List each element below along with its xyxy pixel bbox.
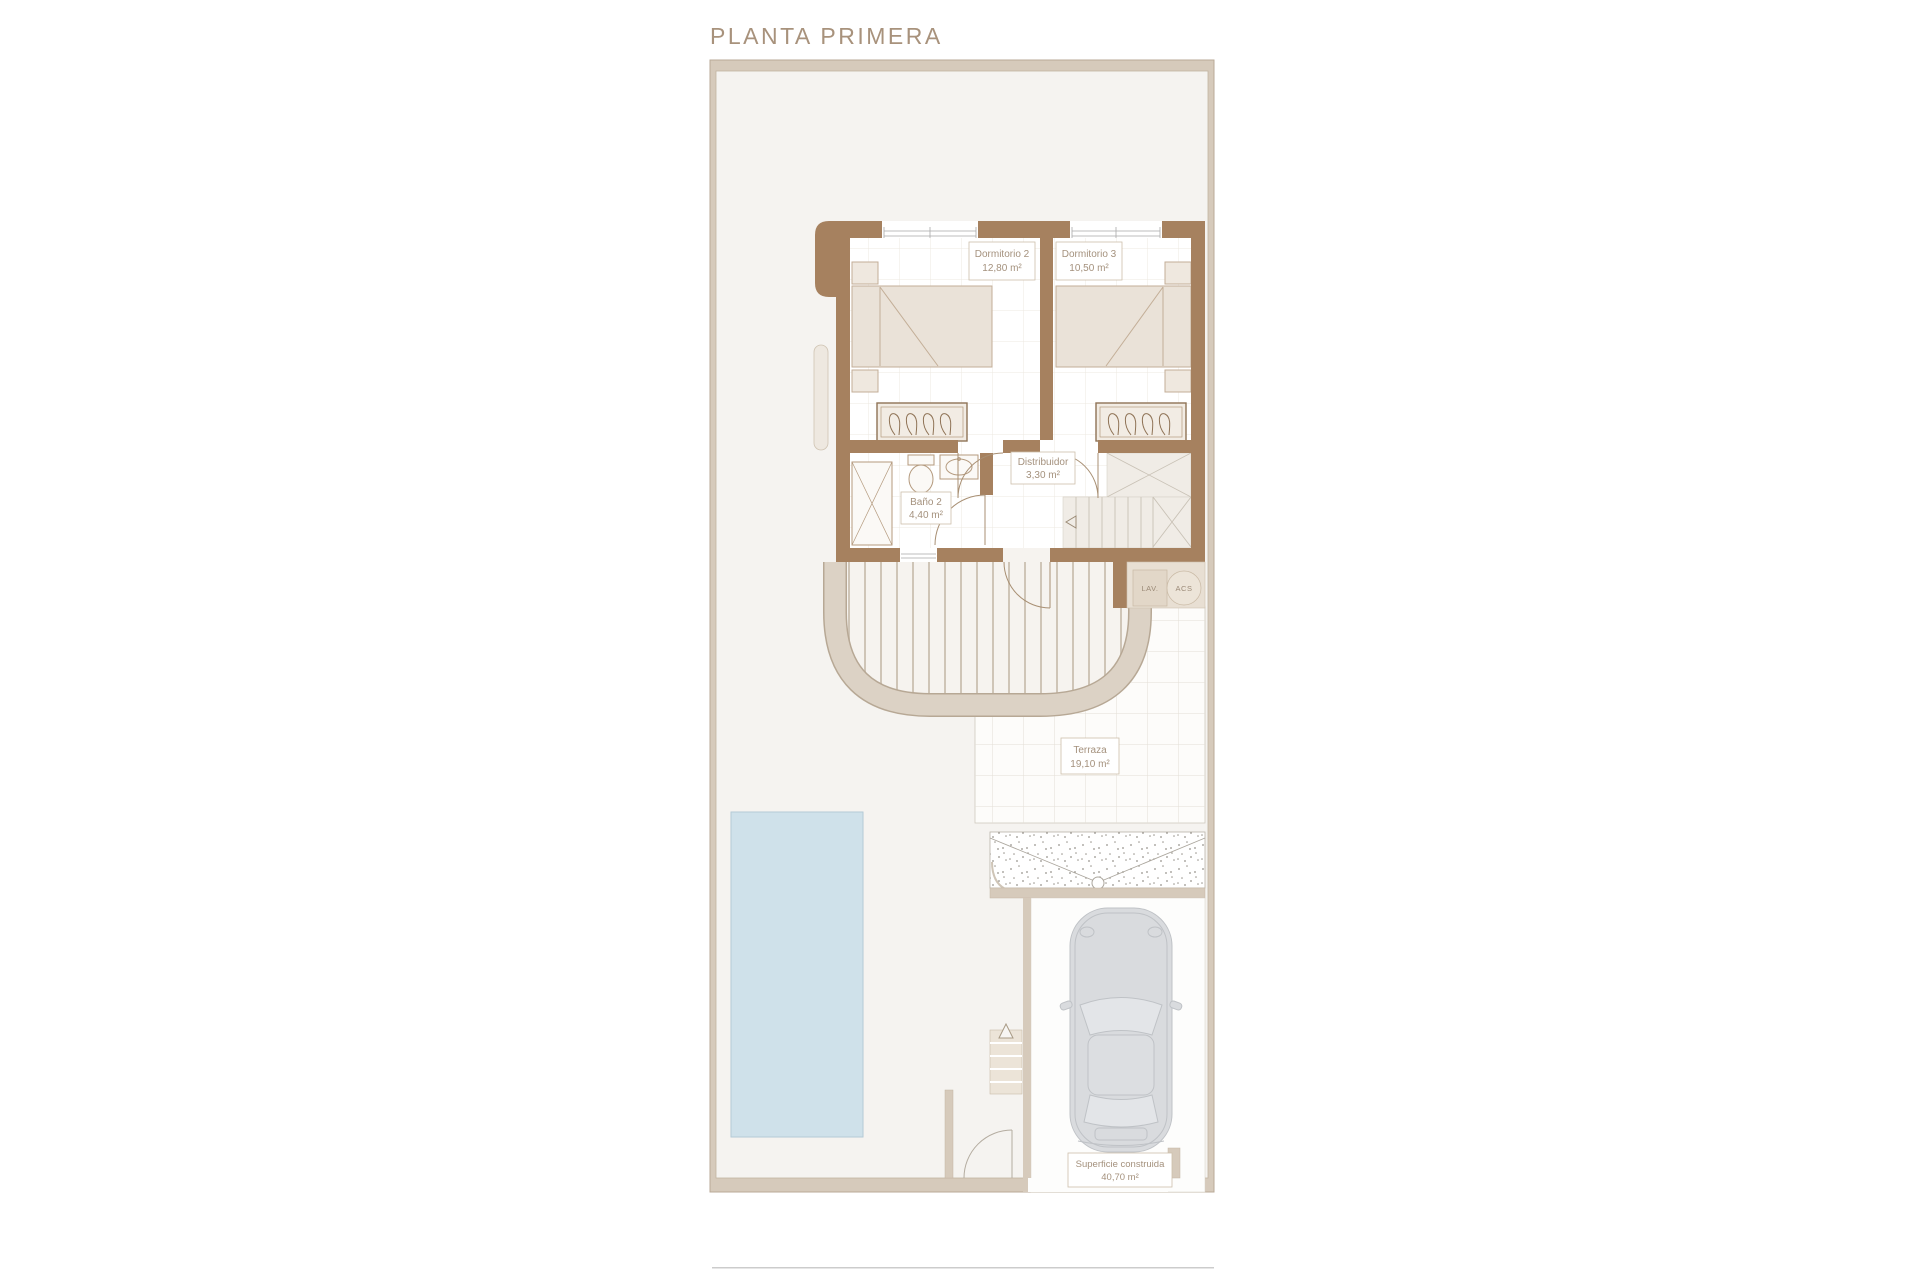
svg-text:Terraza: Terraza bbox=[1073, 745, 1107, 756]
wall-bathroom bbox=[980, 453, 993, 495]
wall-left bbox=[836, 238, 850, 548]
svg-text:12,80 m²: 12,80 m² bbox=[982, 263, 1022, 274]
porch-pergola bbox=[835, 562, 1140, 705]
bay-outline bbox=[814, 345, 828, 450]
svg-text:Distribuidor: Distribuidor bbox=[1018, 457, 1069, 468]
toilet-symbol bbox=[908, 455, 934, 493]
laundry-label: LAV. bbox=[1141, 584, 1158, 593]
sink-symbol bbox=[940, 455, 978, 479]
canopy-wall-strip bbox=[990, 888, 1205, 898]
floor-plan-page: PLANTA PRIMERA bbox=[0, 0, 1920, 1280]
nightstand-symbol bbox=[1165, 370, 1191, 392]
room-label-bano2: Baño 2 4,40 m² bbox=[901, 492, 951, 524]
svg-text:Dormitorio 2: Dormitorio 2 bbox=[975, 249, 1030, 260]
wall-bedroom-divider bbox=[1040, 238, 1053, 440]
shower-symbol bbox=[852, 462, 892, 545]
wall-hall bbox=[850, 440, 958, 453]
svg-text:40,70 m²: 40,70 m² bbox=[1101, 1172, 1139, 1183]
window-symbol bbox=[882, 221, 978, 238]
window-symbol bbox=[1070, 221, 1162, 238]
utility-closet: LAV. ACS bbox=[1127, 562, 1205, 608]
canopy-post bbox=[1092, 877, 1104, 889]
svg-text:3,30 m²: 3,30 m² bbox=[1026, 470, 1061, 481]
floor-plan-drawing: PLANTA PRIMERA bbox=[0, 0, 1920, 1280]
nightstand-symbol bbox=[852, 370, 878, 392]
room-label-dormitorio3: Dormitorio 3 10,50 m² bbox=[1056, 242, 1122, 280]
svg-text:Dormitorio 3: Dormitorio 3 bbox=[1062, 249, 1117, 260]
svg-text:Baño 2: Baño 2 bbox=[910, 497, 942, 508]
wall-right bbox=[1191, 238, 1205, 548]
wardrobe-symbol bbox=[1096, 403, 1186, 441]
wall-utility bbox=[1113, 562, 1127, 608]
exterior-stairs-symbol bbox=[990, 1024, 1022, 1094]
nightstand-symbol bbox=[1165, 262, 1191, 284]
wall-hall bbox=[1003, 440, 1040, 453]
svg-text:4,40 m²: 4,40 m² bbox=[909, 510, 944, 521]
bed-symbol bbox=[852, 286, 992, 367]
room-label-dormitorio2: Dormitorio 2 12,80 m² bbox=[969, 242, 1035, 280]
svg-text:10,50 m²: 10,50 m² bbox=[1069, 263, 1109, 274]
terrace-door-opening bbox=[1003, 548, 1050, 562]
pool bbox=[731, 812, 863, 1137]
plan-title: PLANTA PRIMERA bbox=[710, 23, 943, 49]
bed-symbol bbox=[1056, 286, 1191, 367]
wall-hall bbox=[1098, 440, 1191, 453]
wardrobe-symbol bbox=[877, 403, 967, 441]
garden-wall-stub bbox=[945, 1090, 953, 1178]
window-symbol bbox=[900, 548, 937, 562]
garage-side-wall bbox=[1023, 898, 1031, 1192]
water-heater-label: ACS bbox=[1176, 584, 1193, 593]
room-label-built-surface: Superficie construida 40,70 m² bbox=[1068, 1153, 1172, 1187]
room-label-terraza: Terraza 19,10 m² bbox=[1061, 738, 1119, 774]
car-symbol bbox=[1059, 908, 1182, 1152]
nightstand-symbol bbox=[852, 262, 878, 284]
room-label-distribuidor: Distribuidor 3,30 m² bbox=[1011, 452, 1075, 484]
entrance-canopy bbox=[990, 832, 1205, 898]
svg-text:19,10 m²: 19,10 m² bbox=[1070, 759, 1110, 770]
page-divider-line bbox=[712, 1267, 1214, 1269]
svg-text:Superficie construida: Superficie construida bbox=[1076, 1159, 1165, 1170]
